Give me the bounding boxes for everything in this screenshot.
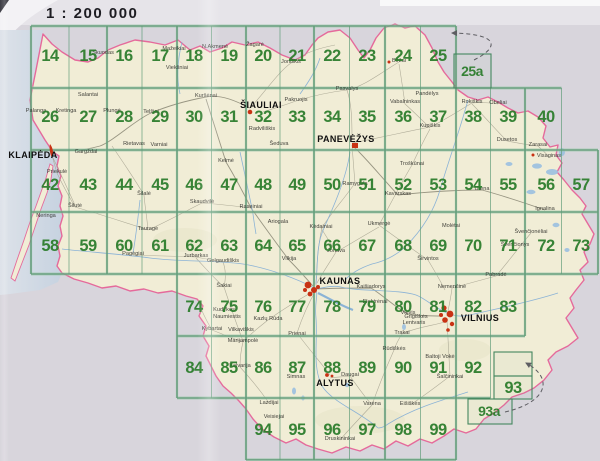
city-label: KAUNAS <box>320 276 361 286</box>
sheet-number: 16 <box>115 47 133 65</box>
sheet-number: 87 <box>288 359 306 377</box>
sheet-number: 40 <box>537 108 555 126</box>
visaginas-marker <box>532 154 535 157</box>
sheet-number: 27 <box>79 108 97 126</box>
town-label: Dusetos <box>497 137 518 143</box>
town-label: Švenčionėliai <box>515 228 548 235</box>
town-label: Pasvalys <box>336 86 359 92</box>
sheet-number: 75 <box>220 298 238 316</box>
sheet-number: 73 <box>572 237 590 255</box>
sheet-number: 80 <box>394 298 412 316</box>
town-label: Priekulė <box>47 169 67 175</box>
sheet-number: 38 <box>464 108 482 126</box>
sheet-number: 57 <box>572 176 590 194</box>
town-label: Ukmergė <box>368 221 391 227</box>
town-label: Pakruojis <box>284 97 307 103</box>
sheet-number: 25a <box>461 63 484 79</box>
sheet-number: 63 <box>220 237 238 255</box>
town-label: Varniai <box>151 142 168 148</box>
sheet-number: 77 <box>288 298 306 316</box>
town-label: Pandėlys <box>415 91 438 97</box>
town-label: Šilalė <box>137 190 151 197</box>
town-label: Eišiškės <box>400 401 421 407</box>
map-canvas: PalangaKretingaSalantaiSkuodasMažeikiaiV… <box>0 0 600 461</box>
town-label: Kazlų Rūda <box>254 316 284 322</box>
town-label: Kėdainiai <box>309 224 332 230</box>
sheet-number: 66 <box>323 237 341 255</box>
sheet-number: 26 <box>41 108 59 126</box>
sheet-number: 96 <box>323 421 341 439</box>
sheet-number: 42 <box>41 176 59 194</box>
sheet-number: 79 <box>358 298 376 316</box>
town-label: Trakai <box>394 330 409 336</box>
sheet-number: 54 <box>464 176 483 194</box>
sheet-number: 99 <box>429 421 447 439</box>
town-label: Viekšniai <box>166 65 188 71</box>
sheet-number: 93a <box>478 403 501 419</box>
sheet-number: 22 <box>323 47 341 65</box>
sheet-number: 48 <box>254 176 272 194</box>
sheet-number: 44 <box>115 176 134 194</box>
sheet-number: 69 <box>429 237 447 255</box>
sheet-number: 50 <box>323 176 341 194</box>
sheet-number: 60 <box>115 237 133 255</box>
town-label: Kaišiadorys <box>357 284 386 290</box>
town-label: Troškūnai <box>400 161 424 167</box>
sheet-number: 70 <box>464 237 482 255</box>
town-label: Pabradė <box>485 272 506 278</box>
sheet-number: 49 <box>288 176 306 194</box>
scale-label: 1 : 200 000 <box>46 5 138 22</box>
town-label: Veisiejai <box>264 414 285 420</box>
city-label: VILNIUS <box>461 313 499 323</box>
sheet-number: 15 <box>79 47 97 65</box>
sheet-number: 94 <box>254 421 273 439</box>
sheet-number: 59 <box>79 237 97 255</box>
sheet-number: 98 <box>394 421 412 439</box>
sheet-number: 33 <box>288 108 306 126</box>
sheet-number: 28 <box>115 108 133 126</box>
town-label: Rūdiškės <box>382 346 405 352</box>
sheet-number: 81 <box>429 298 447 316</box>
town-label: Zarasai <box>529 142 548 148</box>
sheet-number: 93 <box>504 379 522 397</box>
sheet-number: 47 <box>220 176 238 194</box>
sheet-number: 35 <box>358 108 376 126</box>
page-left-edge <box>0 0 9 461</box>
sheet-number: 56 <box>537 176 555 194</box>
town-label: Kretinga <box>56 108 78 114</box>
town-label: Vilkija <box>282 256 297 262</box>
sheet-93-slot-box <box>494 352 532 376</box>
town-label: Varėna <box>363 401 382 407</box>
sheet-number: 17 <box>151 47 169 65</box>
sheet-number: 85 <box>220 359 238 377</box>
town-label: Rokiškis <box>462 99 483 105</box>
sheet-number: 32 <box>254 108 272 126</box>
town-label: Lazdijai <box>260 400 279 406</box>
sheet-number: 71 <box>499 237 517 255</box>
town-label: Prienai <box>288 331 305 337</box>
sheet-number: 31 <box>220 108 238 126</box>
sheet-number: 95 <box>288 421 306 439</box>
town-label: Raseiniai <box>239 204 262 210</box>
town-label: Obeliai <box>489 100 506 106</box>
town-label: Vabalninkas <box>390 99 420 105</box>
sheet-number: 92 <box>464 359 482 377</box>
sheet-number: 23 <box>358 47 376 65</box>
sheet-number: 34 <box>323 108 342 126</box>
sheet-number: 97 <box>358 421 376 439</box>
page-edge-highlight <box>380 0 600 6</box>
town-label: Rietavas <box>123 141 145 147</box>
city-label: PANEVĖŽYS <box>317 133 374 144</box>
sheet-number: 91 <box>429 359 447 377</box>
town-label: Vilkaviškis <box>228 327 254 333</box>
sheet-number: 89 <box>358 359 376 377</box>
sheet-number: 39 <box>499 108 517 126</box>
town-label: Nemenčinė <box>438 284 466 290</box>
sheet-number: 83 <box>499 298 517 316</box>
town-label: Marijampolė <box>228 338 258 344</box>
sheet-number: 37 <box>429 108 447 126</box>
sheet-number: 65 <box>288 237 306 255</box>
town-label: Radviliškis <box>249 126 276 132</box>
birzai-marker <box>388 61 391 64</box>
sheet-number: 21 <box>288 47 306 65</box>
town-label: Tauragė <box>138 226 158 232</box>
town-label: Salantai <box>78 92 98 98</box>
town-label: Molėtai <box>442 223 460 229</box>
sheet-number: 78 <box>323 298 341 316</box>
sheet-number: 68 <box>394 237 412 255</box>
page-fold-highlight <box>197 0 221 461</box>
town-label: Visaginas <box>537 153 561 159</box>
sheet-number: 86 <box>254 359 272 377</box>
sheet-number: 61 <box>151 237 169 255</box>
sheet-number: 43 <box>79 176 97 194</box>
town-label: Ignalina <box>535 206 555 212</box>
sheet-number: 20 <box>254 47 272 65</box>
siauliai-marker <box>248 110 253 115</box>
sheet-number: 36 <box>394 108 412 126</box>
sheet-number: 55 <box>499 176 517 194</box>
city-label: ALYTUS <box>316 378 354 388</box>
atlas-index-page: PalangaKretingaSalantaiSkuodasMažeikiaiV… <box>0 0 600 461</box>
sheet-number: 58 <box>41 237 59 255</box>
city-label: KLAIPĖDA <box>8 150 57 160</box>
sheet-number: 45 <box>151 176 169 194</box>
sheet-number: 29 <box>151 108 169 126</box>
sheet-number: 76 <box>254 298 272 316</box>
town-label: Ariogala <box>268 219 289 225</box>
sheet-number: 14 <box>41 47 60 65</box>
town-label: Šilutė <box>68 202 82 209</box>
sheet-number: 19 <box>220 47 238 65</box>
sheet-number: 88 <box>323 359 341 377</box>
town-label: Lentvaris <box>403 320 426 326</box>
sheet-number: 25 <box>429 47 447 65</box>
sheet-number: 52 <box>394 176 412 194</box>
sheet-number: 72 <box>537 237 555 255</box>
sheet-number: 53 <box>429 176 447 194</box>
town-label: Širvintos <box>417 255 439 262</box>
sheet-number: 90 <box>394 359 412 377</box>
sheet-number: 24 <box>394 47 413 65</box>
city-label: ŠIAULIAI <box>240 99 282 110</box>
sheet-number: 67 <box>358 237 376 255</box>
sheet-number: 64 <box>254 237 273 255</box>
sheet-number: 51 <box>358 176 376 194</box>
town-label: Gargždai <box>75 149 98 155</box>
town-label: Neringa <box>36 213 56 219</box>
town-label: Šeduva <box>270 140 290 147</box>
